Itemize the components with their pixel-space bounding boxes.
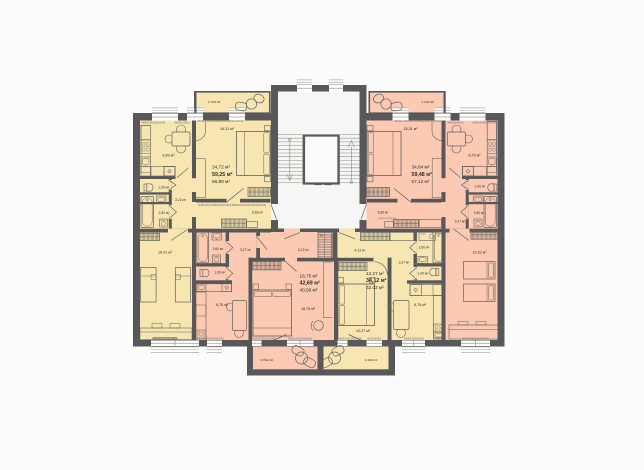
svg-text:6,22 м²: 6,22 м²	[298, 248, 310, 252]
svg-text:46001400260018: 46001400260018	[141, 121, 165, 125]
svg-text:460014002: 460014002	[367, 336, 382, 340]
svg-text:8,69 м²: 8,69 м²	[163, 154, 176, 158]
svg-text:1,00 м²: 1,00 м²	[475, 185, 487, 189]
svg-text:4600140026001: 4600140026001	[404, 336, 425, 340]
svg-text:16,53 м²: 16,53 м²	[472, 250, 487, 254]
svg-text:4,79/2,10: 4,79/2,10	[260, 358, 273, 362]
svg-text:12,27 м²: 12,27 м²	[356, 329, 371, 333]
svg-text:1,00 м²: 1,00 м²	[214, 271, 226, 275]
svg-text:46001400260018002200340016: 46001400260018002200340016	[394, 119, 442, 123]
svg-text:8,75 м²: 8,75 м²	[216, 303, 229, 307]
svg-text:4600140026001800: 4600140026001800	[288, 336, 313, 340]
svg-text:8,75 м²: 8,75 м²	[414, 303, 427, 307]
svg-text:18,31 м²: 18,31 м²	[403, 127, 418, 131]
svg-text:56,89 м²: 56,89 м²	[212, 179, 230, 184]
svg-text:42,69 м²: 42,69 м²	[300, 281, 321, 287]
svg-text:3ч: 3ч	[320, 234, 324, 238]
svg-text:4,19/2,10: 4,19/2,10	[365, 358, 378, 362]
svg-text:18,75 м²: 18,75 м²	[301, 307, 316, 311]
svg-text:460014002600180022: 460014002600180022	[462, 336, 490, 340]
svg-text:34,12 м²: 34,12 м²	[366, 278, 387, 284]
svg-text:4600140026001800: 4600140026001800	[339, 336, 363, 340]
svg-text:3,27 м²: 3,27 м²	[455, 219, 467, 223]
svg-text:6,66 м²: 6,66 м²	[378, 210, 390, 214]
svg-text:1,00 м²: 1,00 м²	[418, 272, 430, 276]
svg-text:18,31 м²: 18,31 м²	[220, 127, 235, 131]
svg-text:1,00 м²: 1,00 м²	[158, 185, 170, 189]
svg-text:4600140026001800: 4600140026001800	[253, 336, 277, 340]
svg-text:4,72/2,36: 4,72/2,36	[208, 100, 221, 104]
svg-text:2,60 м²: 2,60 м²	[419, 245, 431, 249]
svg-text:3,27 м²: 3,27 м²	[240, 248, 252, 252]
svg-text:59,48 м²: 59,48 м²	[412, 172, 433, 178]
svg-text:34,72 м²: 34,72 м²	[212, 165, 230, 170]
svg-text:8,75 м²: 8,75 м²	[469, 154, 482, 158]
svg-text:46001400260018: 46001400260018	[378, 218, 397, 220]
svg-text:460014002: 460014002	[174, 121, 190, 125]
svg-text:40,59 м²: 40,59 м²	[300, 288, 318, 293]
svg-text:57,12 м²: 57,12 м²	[412, 179, 430, 184]
svg-text:46001400260018: 46001400260018	[473, 121, 497, 125]
svg-text:6,66 м²: 6,66 м²	[252, 210, 264, 214]
svg-text:2,60 м²: 2,60 м²	[474, 211, 486, 215]
svg-text:32,02 м²: 32,02 м²	[366, 285, 384, 290]
svg-text:3,27 м²: 3,27 м²	[399, 260, 411, 264]
svg-text:16,41 м²: 16,41 м²	[158, 250, 173, 254]
svg-text:460014002: 460014002	[448, 121, 464, 125]
svg-text:46001400260018002200340016: 46001400260018002200340016	[197, 119, 245, 123]
svg-text:34,84 м²: 34,84 м²	[412, 165, 430, 170]
svg-text:4600140026001: 4600140026001	[205, 336, 225, 340]
svg-text:4,13 м²: 4,13 м²	[355, 249, 367, 253]
svg-text:3,22 м²: 3,22 м²	[175, 198, 187, 202]
svg-text:4,72/2,36: 4,72/2,36	[421, 100, 434, 104]
svg-text:2,60 м²: 2,60 м²	[159, 211, 171, 215]
svg-text:46001400260018002200340016: 46001400260018002200340016	[198, 203, 267, 207]
svg-text:12,27 м²: 12,27 м²	[366, 271, 384, 276]
svg-text:2,60 м²: 2,60 м²	[213, 247, 225, 251]
svg-text:59,25 м²: 59,25 м²	[212, 172, 233, 178]
svg-text:18,75 м²: 18,75 м²	[300, 273, 318, 278]
